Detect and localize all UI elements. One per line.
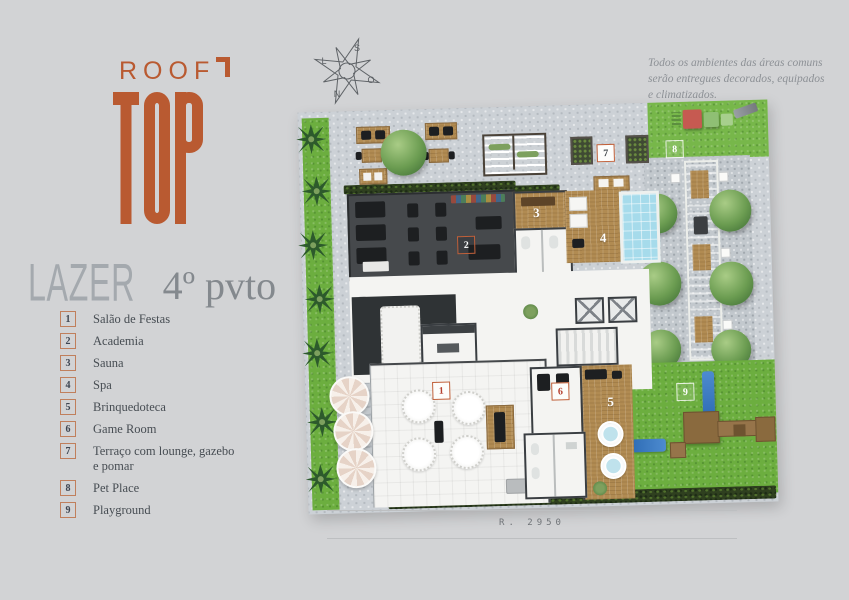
legend-item-game-room: 6Game Room (60, 421, 235, 437)
legend-label-2: Academia (93, 333, 144, 349)
kitchen-island (437, 343, 459, 353)
legend-label-9: Playground (93, 502, 151, 518)
pergola-divider (512, 136, 515, 170)
terrace-umbrella (336, 448, 377, 489)
orchard-tree (709, 261, 754, 306)
treadmill (356, 224, 386, 241)
disclaimer-text: Todos os ambientes das áreas comuns serã… (648, 55, 828, 103)
pet-toy-green-cube (704, 112, 719, 127)
spin-bike (408, 227, 419, 241)
stall-divider (541, 230, 544, 276)
plan-marker-9: 9 (676, 383, 694, 401)
palm-tree (302, 338, 333, 369)
palm-tree (298, 230, 329, 261)
legend-number-6: 6 (60, 421, 76, 437)
pet-ladder (672, 112, 681, 125)
legend-item-spa: 4Spa (60, 377, 235, 393)
spin-bike (407, 203, 418, 217)
subtitle-floor: 4º pvto (163, 262, 277, 309)
street-reference: R. 2950 (327, 518, 737, 528)
palm-tree (304, 284, 335, 315)
legend-label-6: Game Room (93, 421, 157, 437)
compass-south-label: S (354, 43, 360, 53)
playground-platform (683, 411, 720, 444)
gazebo-firepit (694, 216, 708, 234)
plan-marker-4: 4 (595, 230, 611, 246)
spa-lounger (569, 197, 587, 211)
legend-number-3: 3 (60, 355, 76, 371)
disclaimer-line-1: Todos os ambientes das áreas comuns (648, 55, 828, 71)
legend-item-pet-place: 8Pet Place (60, 480, 235, 496)
legend-number-1: 1 (60, 311, 76, 327)
logo-top-text (113, 92, 203, 229)
gazebo-table (692, 244, 711, 270)
logo-roof-text: ROOF (119, 57, 230, 86)
terrace-bench (425, 122, 457, 140)
legend-number-7: 7 (60, 443, 76, 459)
round-table (401, 389, 436, 424)
legend-label-8: Pet Place (93, 480, 139, 496)
high-table (434, 421, 444, 443)
elevator-shaft (575, 297, 605, 324)
interior-plant (523, 304, 538, 319)
compass-west-label: O (367, 75, 374, 85)
legend-label-7: Terraço com lounge, gazebo e pomar (93, 443, 235, 474)
toilet-fixture (531, 443, 539, 455)
playground-tower (755, 416, 776, 442)
gazebo-table (694, 316, 713, 342)
terrace-lounge (359, 168, 387, 185)
spin-bike (408, 251, 419, 265)
playground-box (670, 442, 686, 458)
legend-item-playground: 9Playground (60, 502, 235, 518)
footer-rule-top (327, 510, 737, 511)
ofuro-tub (597, 421, 624, 448)
buffet-table (486, 405, 515, 450)
compass-north-label: N (334, 89, 341, 99)
sink-fixture (566, 442, 577, 449)
compass-east-label: L (321, 56, 326, 66)
legend-item-salao: 1Salão de Festas (60, 311, 235, 327)
toilet-fixture (521, 236, 530, 249)
legend-number-2: 2 (60, 333, 76, 349)
wall-planter (570, 136, 593, 165)
legend-item-academia: 2Academia (60, 333, 235, 349)
playground-slide-horizontal (632, 438, 666, 452)
wall-planter (625, 135, 649, 164)
deck-lounge (585, 369, 607, 380)
plan-marker-7: 7 (596, 144, 614, 162)
palm-tree (296, 124, 327, 155)
legend-label-3: Sauna (93, 355, 124, 371)
legend-number-4: 4 (60, 377, 76, 393)
dining-table (380, 305, 422, 366)
game-room (530, 366, 586, 437)
plan-marker-8: 8 (665, 140, 683, 158)
treadmill (355, 201, 385, 218)
legend-label-4: Spa (93, 377, 112, 393)
page: ROOF S L O N Todos os ambientes das área… (0, 0, 849, 600)
pet-toy-green-cube-small (721, 113, 733, 125)
elevator-shaft (608, 296, 638, 323)
legend-item-brinquedoteca: 5Brinquedoteca (60, 399, 235, 415)
legend-number-5: 5 (60, 399, 76, 415)
plan-marker-2: 2 (457, 236, 475, 254)
legend-number-8: 8 (60, 480, 76, 496)
plan-marker-1: 1 (432, 381, 450, 399)
weight-machine (475, 216, 501, 230)
orchard-tree (709, 189, 752, 232)
round-table (451, 391, 486, 426)
dumbbell-rack (451, 194, 505, 204)
plan-marker-5: 5 (602, 394, 618, 410)
terrace-table (362, 148, 382, 163)
trellis-pergola (482, 133, 547, 177)
pet-toy-red-cube (683, 109, 703, 129)
pet-ramp (733, 102, 759, 119)
terrace-big-tree (380, 129, 427, 176)
rooftop-floor-plan: 1 2 3 4 5 6 7 8 9 (297, 100, 778, 515)
plan-marker-3: 3 (528, 205, 544, 221)
gazebo-chair (720, 248, 730, 258)
kitchen-counter (422, 325, 474, 334)
gym-room (347, 190, 517, 282)
palm-tree (305, 464, 336, 495)
restrooms (524, 432, 588, 500)
round-table (450, 435, 485, 470)
amenities-legend: 1Salão de Festas 2Academia 3Sauna 4Spa 5… (60, 311, 235, 524)
legend-item-terraco: 7Terraço com lounge, gazebo e pomar (60, 443, 235, 474)
disclaimer-line-2: serão entregues decorados, equipados (648, 71, 828, 87)
logo-roof-word: ROOF (119, 57, 215, 85)
deck-table (612, 371, 622, 379)
gazebo-chair (670, 173, 680, 183)
gazebo-chair (718, 172, 728, 182)
plan-marker-6: 6 (551, 382, 569, 400)
game-table (537, 374, 550, 391)
terrace-table (429, 148, 449, 163)
floor-subtitle: LAZER4º pvto (28, 254, 276, 314)
legend-label-1: Salão de Festas (93, 311, 170, 327)
deck-plant (593, 481, 607, 495)
restroom-divider (553, 435, 557, 497)
toilet-fixture (531, 467, 539, 479)
logo-bracket-icon (216, 57, 230, 77)
staircase (556, 327, 619, 367)
deck-brinquedoteca (580, 364, 636, 499)
gazebo-chair (722, 320, 732, 330)
gazebo-table (690, 170, 709, 198)
footer-rule-bottom (327, 538, 737, 539)
pergola-plants (517, 151, 539, 158)
pergola-plants (488, 144, 510, 151)
spa-lounger (569, 214, 587, 228)
round-table (402, 437, 437, 472)
spin-bike (436, 251, 447, 265)
legend-item-sauna: 3Sauna (60, 355, 235, 371)
spin-bike (436, 227, 447, 241)
palm-tree (301, 176, 332, 207)
spin-bike (435, 203, 446, 217)
playground-post (733, 424, 745, 436)
logo-top-letters-icon (113, 92, 203, 224)
spa-side-table (572, 239, 584, 248)
gym-mat (363, 261, 389, 272)
spa-deck (565, 190, 623, 264)
spa-pool (619, 191, 661, 264)
subtitle-lazer: LAZER (28, 253, 135, 314)
legend-number-9: 9 (60, 502, 76, 518)
toilet-fixture (549, 235, 558, 248)
ofuro-tub (600, 453, 627, 480)
legend-label-5: Brinquedoteca (93, 399, 166, 415)
